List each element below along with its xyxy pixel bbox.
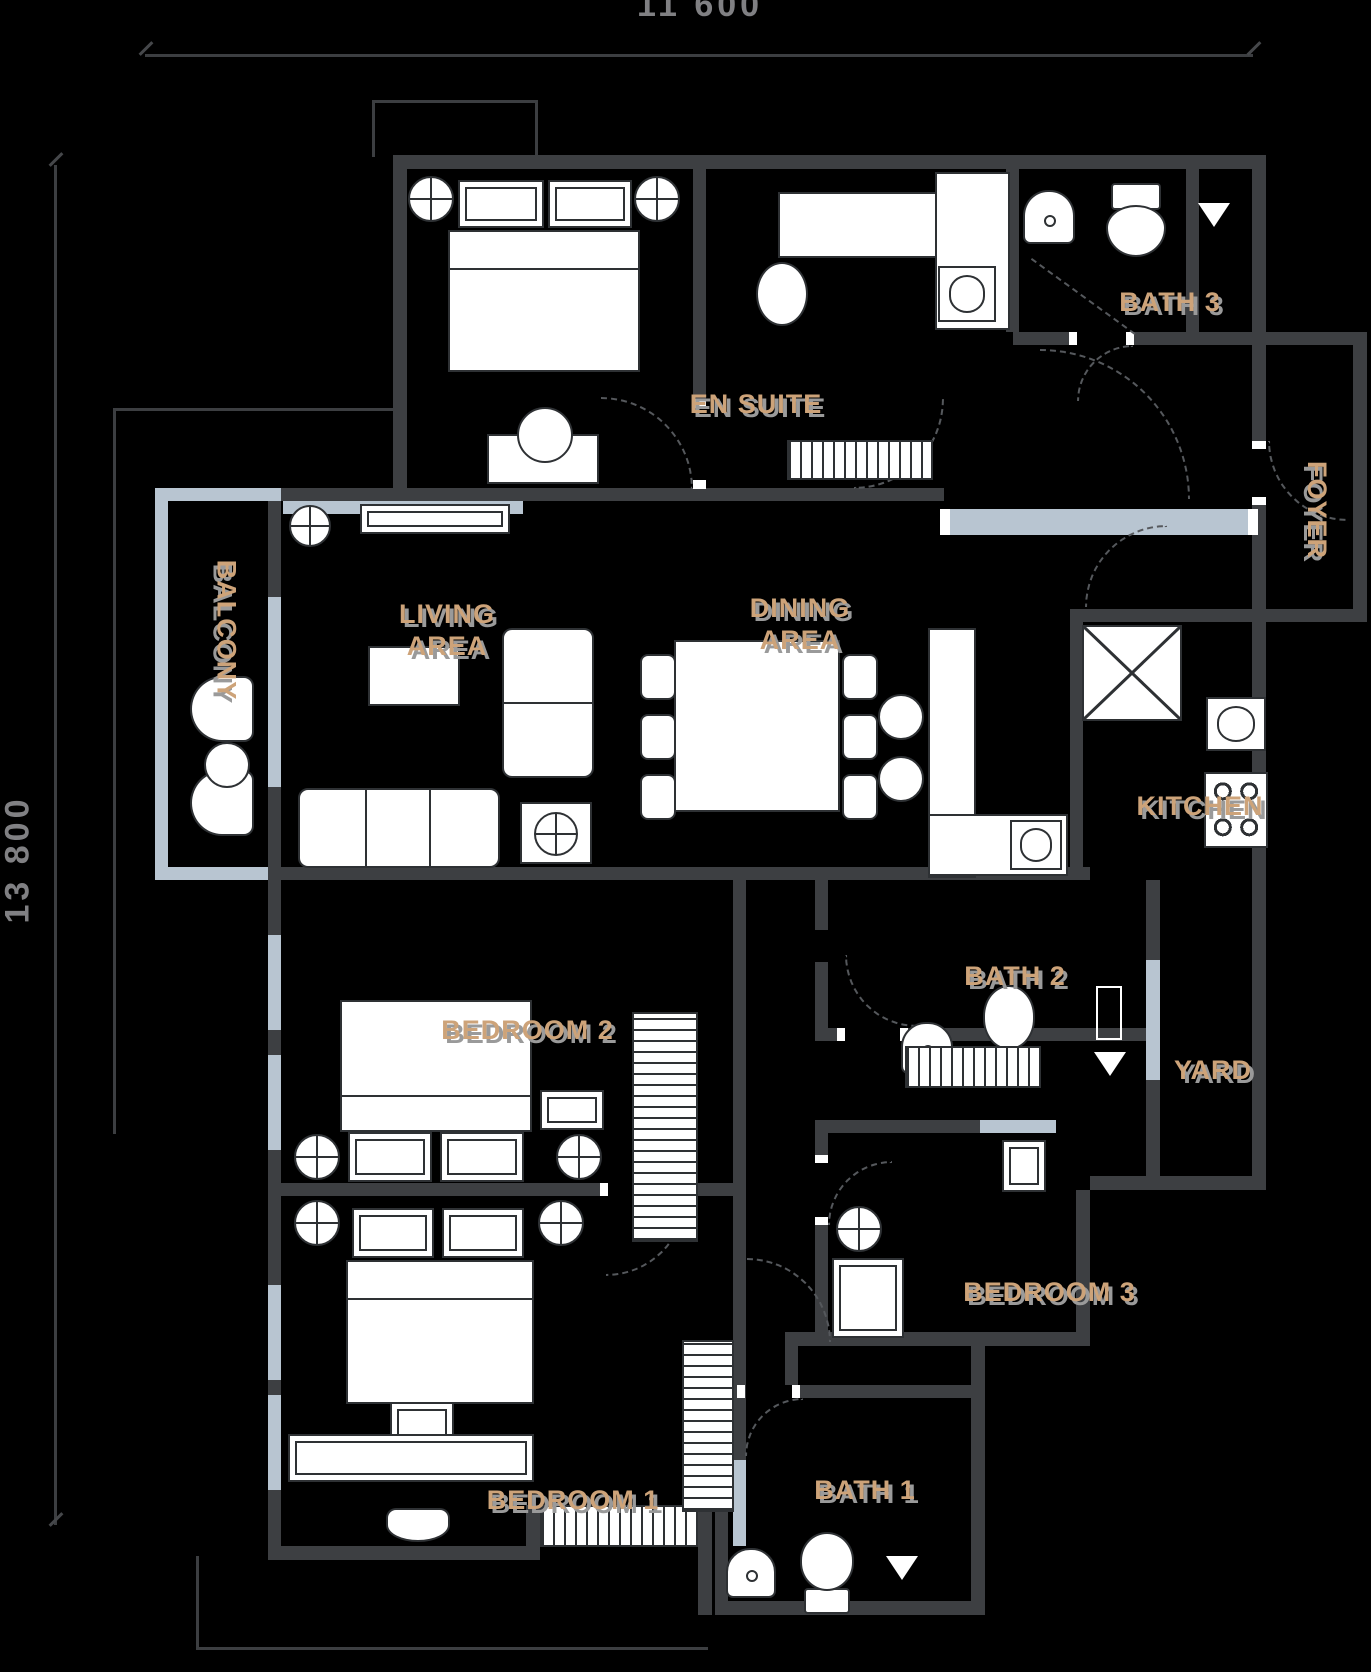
wall	[1266, 609, 1366, 622]
wall	[268, 1546, 540, 1560]
wall	[268, 1183, 608, 1196]
window-wall	[268, 1055, 281, 1150]
planter	[386, 1508, 450, 1542]
dining-chair	[842, 654, 878, 700]
dining-chair	[842, 714, 878, 760]
pillow	[548, 180, 632, 228]
vanity-counter	[778, 192, 940, 258]
window-wall	[268, 1285, 281, 1380]
light-symbol-icon	[294, 1134, 340, 1180]
closet-hatch	[905, 1046, 1041, 1088]
roof-outline	[535, 100, 538, 157]
room-label-dining-area: DINING AREA	[730, 592, 870, 656]
stool	[517, 407, 573, 463]
room-label-bedroom-3: BEDROOM 3	[942, 1276, 1157, 1308]
dining-table	[674, 640, 840, 812]
room-label-bath-3: BATH 3	[1080, 286, 1260, 318]
dining-chair	[842, 774, 878, 820]
chair	[756, 262, 808, 326]
wall	[733, 880, 746, 1183]
balcony-table	[204, 742, 250, 788]
roof-outline	[196, 1647, 708, 1650]
pillow	[348, 1132, 432, 1182]
wall	[1353, 332, 1367, 622]
pillow	[442, 1208, 524, 1258]
roof-outline	[372, 100, 375, 157]
door-arc	[1085, 525, 1167, 607]
light-symbol-icon	[538, 1200, 584, 1246]
door-jamb	[792, 1385, 800, 1398]
light-symbol-icon	[289, 505, 331, 547]
door-arc	[745, 1398, 803, 1456]
wall	[698, 1505, 712, 1615]
door-jamb	[737, 1385, 745, 1398]
drain-symbol-icon	[1094, 1052, 1126, 1076]
dresser	[832, 1258, 904, 1338]
window-wall	[945, 509, 1257, 535]
wash-basin	[1023, 190, 1075, 244]
roof-outline	[113, 408, 395, 411]
window-wall	[155, 501, 168, 867]
wardrobe-hatch	[632, 1012, 698, 1242]
yard-fixture	[1096, 986, 1122, 1040]
sink	[1010, 820, 1062, 870]
floor-plan: 11 600 13 800	[0, 0, 1371, 1672]
nightstand	[540, 1090, 604, 1130]
dimension-tick	[1247, 41, 1262, 56]
wall	[1014, 155, 1266, 169]
door-jamb	[815, 1217, 828, 1225]
closet-hatch	[787, 440, 933, 480]
bar-stool	[878, 694, 924, 740]
bed-master	[448, 230, 640, 372]
wall	[971, 1346, 985, 1385]
window-wall	[980, 1120, 1056, 1133]
drain-symbol-icon	[1198, 203, 1230, 227]
wall	[1146, 1080, 1160, 1176]
dresser-shelf	[288, 1434, 534, 1482]
bar-stool	[878, 756, 924, 802]
wall	[971, 1385, 985, 1615]
door-jamb	[1252, 497, 1266, 505]
room-label-bedroom-1: BEDROOM 1	[458, 1484, 688, 1516]
wall	[1266, 332, 1366, 345]
room-label-balcony: BALCONY	[198, 545, 254, 715]
room-label-yard: YARD	[1148, 1054, 1278, 1086]
room-label-bedroom-2: BEDROOM 2	[415, 1014, 640, 1046]
wall	[1252, 169, 1266, 349]
room-label-en-suite: EN SUITE	[666, 388, 846, 420]
wall	[393, 155, 1014, 169]
window-wall	[268, 1395, 281, 1490]
wall	[815, 880, 828, 930]
wardrobe-hatch	[682, 1340, 734, 1512]
dining-chair	[640, 714, 676, 760]
dimension-height-label: 13 800	[0, 780, 38, 940]
wall	[1146, 880, 1160, 960]
wash-basin	[726, 1548, 776, 1598]
wall	[1090, 1176, 1266, 1190]
dimension-width-label: 11 600	[560, 0, 840, 25]
window-wall	[155, 488, 281, 501]
roof-outline	[372, 100, 538, 103]
wall	[815, 1120, 980, 1133]
window-wall	[733, 1460, 746, 1546]
door-arc	[1077, 345, 1133, 401]
wall	[393, 169, 407, 502]
door-jamb	[837, 1028, 845, 1041]
pillow	[352, 1208, 434, 1258]
room-label-bath-1: BATH 1	[790, 1474, 940, 1506]
wall	[800, 1385, 985, 1398]
shaft-box	[1082, 625, 1182, 721]
room-label-living-area: LIVING AREA	[377, 598, 517, 662]
room-label-foyer: FOYER	[1288, 445, 1346, 575]
wall	[268, 501, 281, 597]
light-symbol-icon	[556, 1134, 602, 1180]
nightstand	[1002, 1140, 1046, 1192]
room-label-bath-2: BATH 2	[950, 960, 1080, 992]
light-symbol-icon	[836, 1206, 882, 1252]
door-jamb	[1252, 441, 1266, 449]
door-jamb	[815, 1155, 828, 1163]
window-wall	[268, 597, 281, 787]
wall	[1013, 332, 1077, 345]
roof-outline	[196, 1556, 199, 1650]
drain-symbol-icon	[886, 1556, 918, 1580]
wall	[1076, 1190, 1090, 1346]
wall	[693, 169, 706, 399]
wall	[1252, 349, 1266, 441]
dimension-height-line	[54, 165, 57, 1525]
wall	[785, 1346, 798, 1385]
door-arc	[845, 955, 917, 1027]
wall	[268, 488, 944, 501]
wall	[1070, 609, 1266, 622]
toilet	[1106, 183, 1166, 257]
wall	[1134, 332, 1266, 345]
kitchen-sink	[1206, 697, 1266, 751]
light-symbol-icon	[534, 812, 578, 856]
pillow	[440, 1132, 524, 1182]
shaft-x-icon	[1084, 627, 1180, 719]
roof-outline	[113, 408, 116, 1134]
window-wall	[268, 935, 281, 1030]
sofa	[298, 788, 500, 868]
window-frame	[1248, 509, 1258, 535]
dining-chair	[640, 774, 676, 820]
door-jamb	[693, 480, 706, 489]
bed-bedroom1	[346, 1260, 534, 1404]
door-jamb	[600, 1183, 608, 1196]
door-jamb	[1069, 332, 1077, 345]
light-symbol-icon	[294, 1200, 340, 1246]
sink	[938, 266, 996, 322]
dimension-width-line	[145, 54, 1253, 57]
pillow	[458, 180, 544, 228]
room-label-kitchen: KITCHEN	[1120, 790, 1280, 822]
window-frame	[940, 509, 950, 535]
window-wall	[155, 867, 281, 880]
light-symbol-icon	[408, 176, 454, 222]
toilet	[800, 1532, 854, 1614]
tv-console	[360, 504, 510, 534]
light-symbol-icon	[634, 176, 680, 222]
dining-chair	[640, 654, 676, 700]
